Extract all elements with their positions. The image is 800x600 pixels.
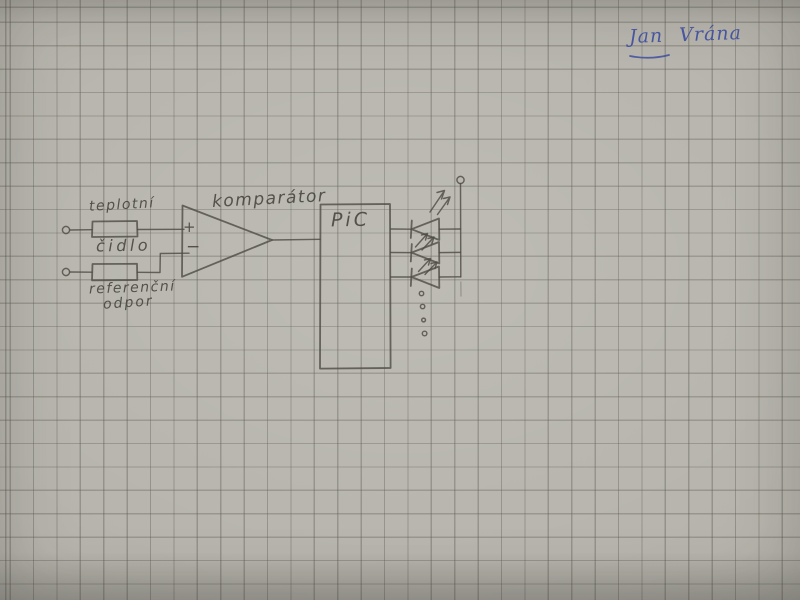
reference-label-line2: odpor <box>103 294 155 312</box>
sensor-label-line1: teplotní <box>89 196 155 213</box>
led-array <box>391 176 465 335</box>
graph-paper-photo: teplotní čidlo referenční odpor komparát… <box>0 0 800 600</box>
reference-resistor-icon <box>92 264 137 281</box>
author-signature: Jan Vrána <box>629 24 743 47</box>
led-icon <box>412 267 440 289</box>
sensor-label-line2: čidlo <box>96 238 151 255</box>
comparator-plus-sign: + <box>183 220 196 235</box>
led-1-emission-arrows-icon <box>430 191 450 215</box>
more-outputs-icon <box>419 291 427 336</box>
led-3 <box>391 259 461 289</box>
input-terminal-top-icon <box>62 226 69 233</box>
comparator <box>182 206 320 277</box>
supply-terminal-icon <box>457 176 464 183</box>
comparator-minus-sign: − <box>186 239 200 256</box>
signature-flourish <box>630 55 669 58</box>
mcu-label: PiC <box>331 211 370 231</box>
comparator-output-wire <box>272 239 320 240</box>
input-terminal-bottom-icon <box>62 268 69 275</box>
led-1 <box>391 191 461 241</box>
temperature-sensor-resistor-icon <box>92 221 138 237</box>
